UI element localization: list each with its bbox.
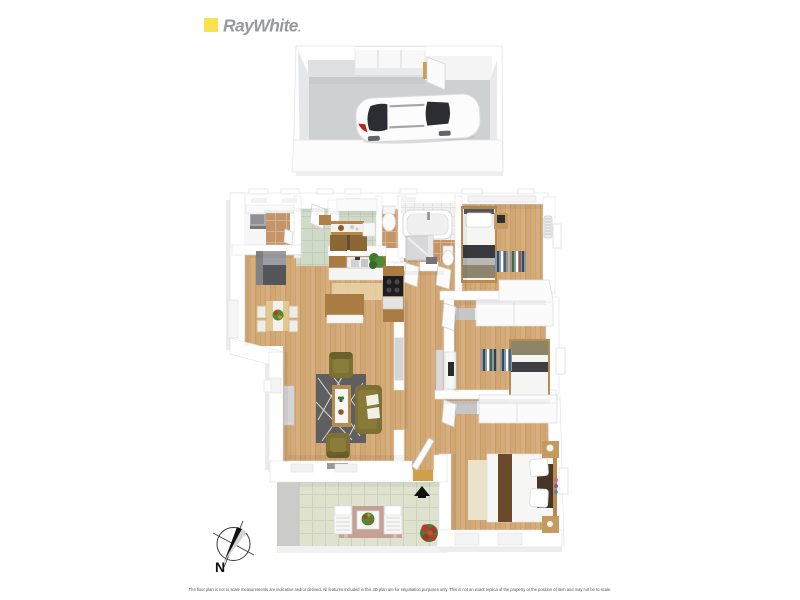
svg-text:RayWhite.: RayWhite. [223,16,301,36]
svg-text:The floor plan is not to scale: The floor plan is not to scale measureme… [189,587,612,592]
svg-text:N: N [215,559,225,575]
